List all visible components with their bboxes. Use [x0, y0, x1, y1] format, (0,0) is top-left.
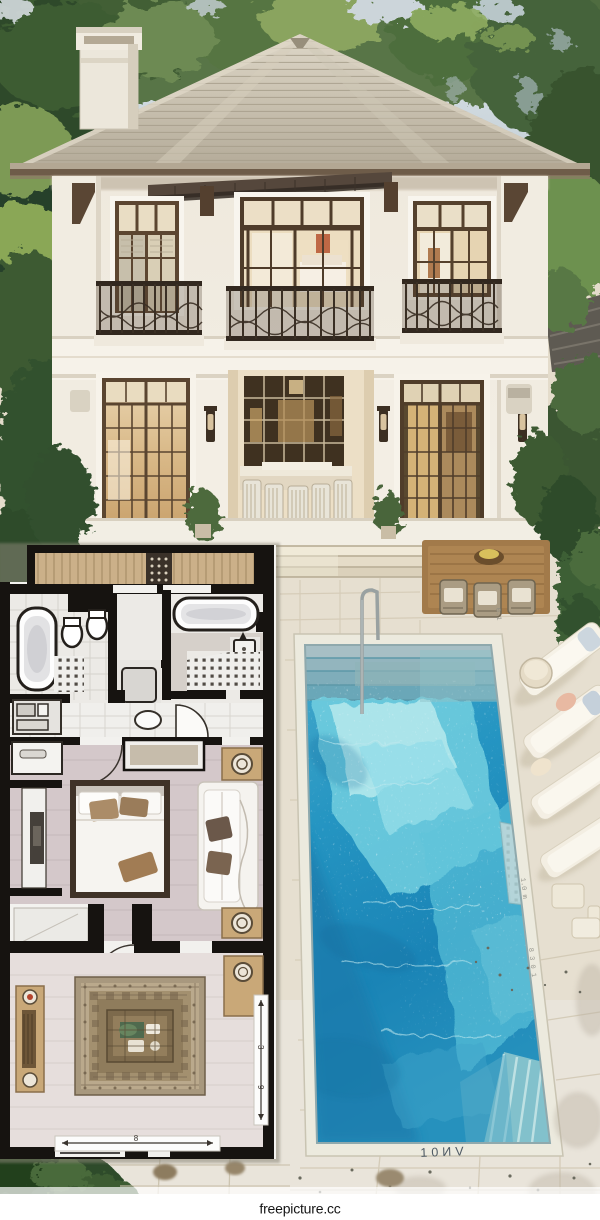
- svg-text:10ИV: 10ИV: [420, 1144, 468, 1160]
- svg-text:3: 3: [256, 1045, 265, 1050]
- svg-text:0.1: 0.1: [493, 607, 502, 620]
- svg-text:9: 9: [256, 1085, 265, 1090]
- svg-text:8: 8: [134, 1134, 139, 1143]
- svg-text:freepicture.cc: freepicture.cc: [259, 1201, 340, 1217]
